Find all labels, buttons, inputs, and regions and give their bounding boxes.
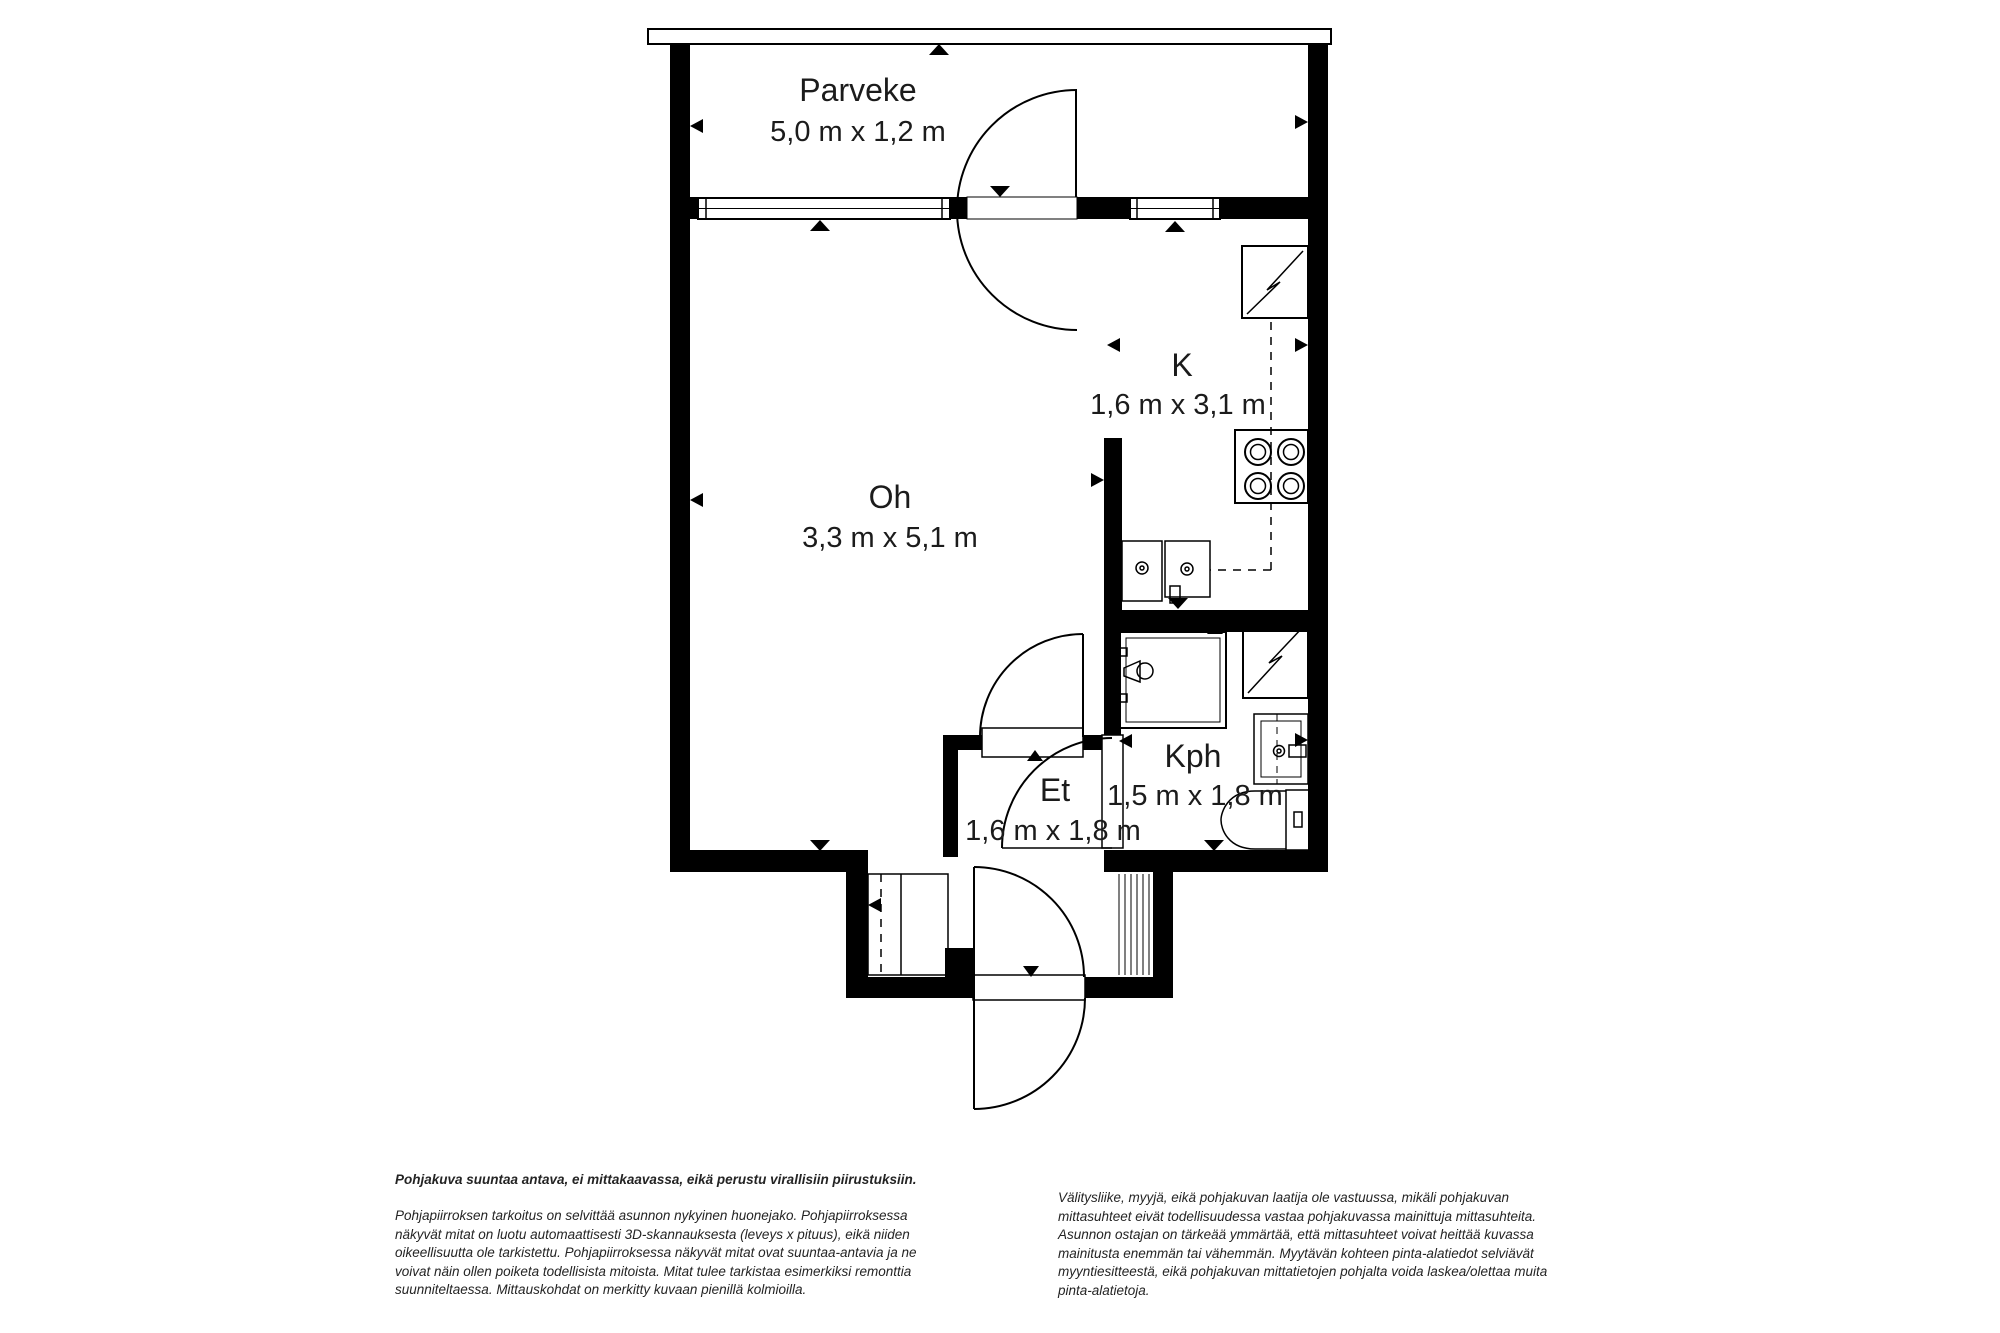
wall-segment — [670, 850, 868, 872]
room-dimensions-kph: 1,5 m x 1,8 m — [1107, 780, 1283, 812]
water-heater-icon — [1243, 622, 1308, 698]
wall-segment — [1104, 438, 1122, 610]
refrigerator-icon — [1242, 246, 1308, 318]
room-dimensions-oh: 3,3 m x 5,1 m — [802, 522, 978, 554]
wall-segment — [1153, 872, 1173, 998]
room-dimensions-k: 1,6 m x 3,1 m — [1090, 389, 1266, 421]
wall-segment — [846, 850, 868, 998]
washbasin-icon — [1254, 714, 1308, 784]
kitchen-fixtures — [1122, 246, 1308, 603]
living-room-door-opening — [982, 728, 1083, 757]
wall-segment — [1104, 623, 1121, 737]
measure-triangle-icon — [810, 220, 830, 231]
measure-triangle-icon — [1107, 338, 1120, 352]
room-label-et: Et — [1040, 772, 1070, 808]
measure-triangle-icon — [1091, 473, 1104, 487]
measure-triangle-icon — [929, 44, 949, 55]
window-icon — [1130, 198, 1220, 219]
room-label-k: K — [1171, 347, 1192, 383]
room-label-kph: Kph — [1165, 738, 1222, 774]
disclaimer-headline: Pohjakuva suuntaa antava, ei mittakaavas… — [395, 1172, 916, 1187]
living-room-door-icon — [980, 634, 1083, 737]
measure-triangle-icon — [690, 493, 703, 507]
stairs-hatch-icon — [1119, 874, 1149, 975]
bathroom-fixtures — [1113, 622, 1310, 850]
door-openings — [967, 197, 1123, 1000]
measure-triangle-icon — [868, 898, 881, 912]
measure-triangle-icon — [1295, 115, 1308, 129]
disclaimer-left-paragraph: Pohjapiirroksen tarkoitus on selvittää a… — [395, 1207, 951, 1300]
doors — [957, 90, 1112, 1109]
measure-triangle-icon — [690, 119, 703, 133]
wall-segment — [1104, 850, 1328, 872]
kitchen-sink-icon — [1122, 541, 1210, 603]
room-dimensions-parveke: 5,0 m x 1,2 m — [770, 116, 946, 148]
wall-segment — [945, 948, 973, 998]
measure-triangle-icon — [1204, 840, 1224, 851]
measure-triangle-icon — [990, 186, 1010, 197]
wardrobe-icon — [868, 874, 948, 975]
room-label-parveke: Parveke — [799, 72, 916, 108]
room-dimensions-et: 1,6 m x 1,8 m — [965, 815, 1141, 847]
measure-triangle-icon — [810, 840, 830, 851]
window-icon — [698, 198, 950, 219]
wall-segment — [670, 43, 690, 872]
floor-plan-canvas: Parveke 5,0 m x 1,2 m Oh 3,3 m x 5,1 m K… — [0, 0, 2000, 1333]
wall-segment — [943, 750, 958, 857]
room-label-oh: Oh — [869, 479, 912, 515]
balcony-door-opening — [967, 197, 1077, 219]
disclaimer-right-paragraph: Välitysliike, myyjä, eikä pohjakuvan laa… — [1058, 1189, 1558, 1300]
shower-icon — [1113, 632, 1226, 728]
floor-plan-page: Parveke 5,0 m x 1,2 m Oh 3,3 m x 5,1 m K… — [0, 0, 2000, 1333]
wall-segment — [1308, 43, 1328, 872]
measure-triangle-icon — [1165, 221, 1185, 232]
front-door-opening — [973, 975, 1085, 1000]
balcony-railing-icon — [648, 29, 1331, 44]
measure-triangle-icon — [1295, 338, 1308, 352]
